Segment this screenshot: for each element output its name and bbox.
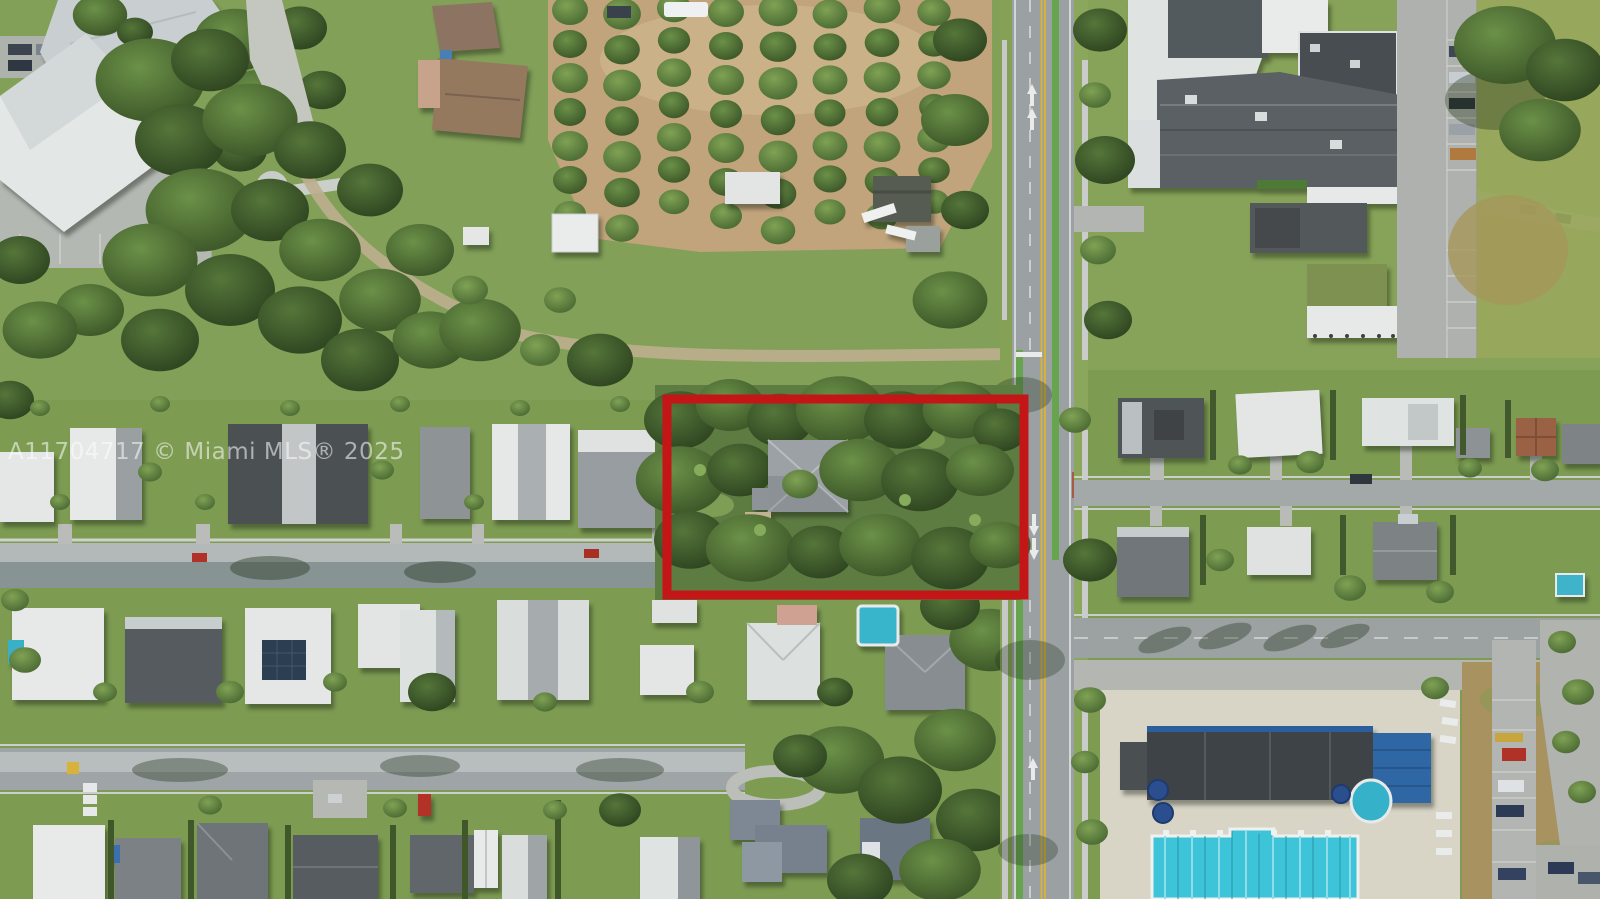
utility-box (67, 762, 79, 774)
white-shed (552, 214, 598, 252)
farm-shed (725, 172, 780, 204)
subject-parcel (636, 376, 1031, 600)
red-car (192, 553, 207, 562)
mls-watermark: A11704717 © Miami MLS® 2025 (8, 439, 404, 465)
screenshot-root: A11704717 © Miami MLS® 2025 (0, 0, 1600, 899)
lap-pool (1152, 829, 1358, 899)
backyard-pool (858, 606, 898, 645)
dark-pickup (607, 6, 631, 18)
red-car (584, 549, 599, 558)
parking-strip (1492, 640, 1536, 899)
yellow-hatch-small (1495, 733, 1523, 742)
white-van (664, 2, 708, 17)
bike-lane-green (1052, 0, 1059, 560)
solar-panels (262, 640, 306, 680)
red-car (418, 794, 431, 816)
aerial-photo: A11704717 © Miami MLS® 2025 (0, 0, 1600, 899)
small-oval-pool (1351, 780, 1391, 822)
stop-bar (1016, 352, 1042, 357)
pink-patio (777, 605, 817, 625)
red-car (1502, 748, 1526, 761)
cross-street-1 (1074, 480, 1600, 506)
pool-complex (1071, 620, 1600, 899)
green-roof (1307, 264, 1387, 306)
